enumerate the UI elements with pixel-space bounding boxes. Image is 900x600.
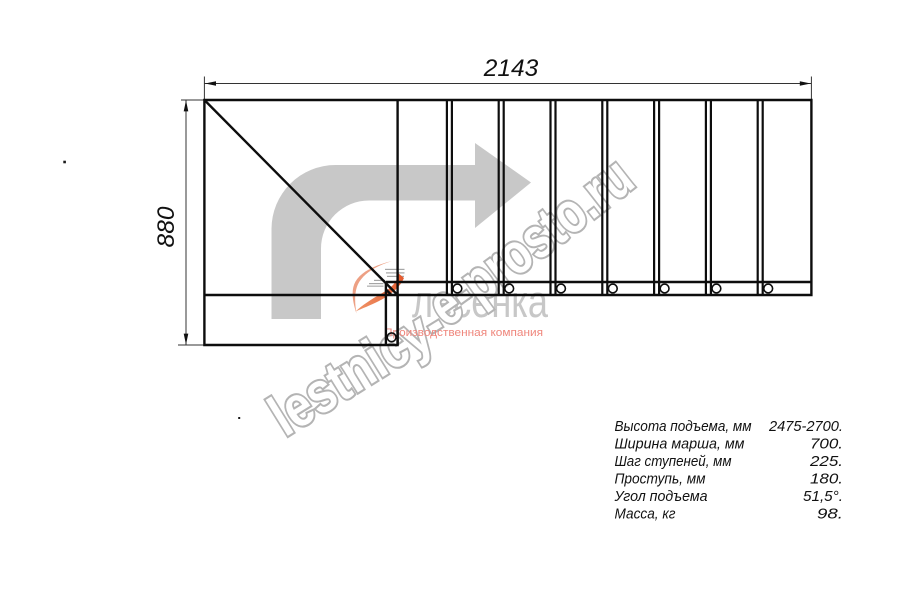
svg-text:Угол подъема: Угол подъема	[614, 488, 708, 505]
svg-text:98.: 98.	[817, 506, 843, 523]
svg-text:Высота подъема, мм: Высота подъема, мм	[615, 418, 752, 435]
svg-text:880: 880	[153, 206, 180, 247]
svg-text:Шаг ступеней, мм: Шаг ступеней, мм	[615, 453, 732, 470]
svg-text:225.: 225.	[809, 453, 843, 470]
svg-text:Производственная компания: Производственная компания	[384, 327, 543, 339]
svg-text:Ширина марша, мм: Ширина марша, мм	[615, 436, 745, 453]
svg-text:180.: 180.	[810, 471, 843, 488]
svg-text:Проступь, мм: Проступь, мм	[615, 471, 706, 488]
svg-text:2475-2700.: 2475-2700.	[768, 418, 843, 435]
svg-text:700.: 700.	[810, 436, 843, 453]
svg-text:2143: 2143	[483, 55, 539, 82]
svg-text:51,5°.: 51,5°.	[803, 488, 843, 505]
svg-text:Масса, кг: Масса, кг	[615, 506, 677, 523]
